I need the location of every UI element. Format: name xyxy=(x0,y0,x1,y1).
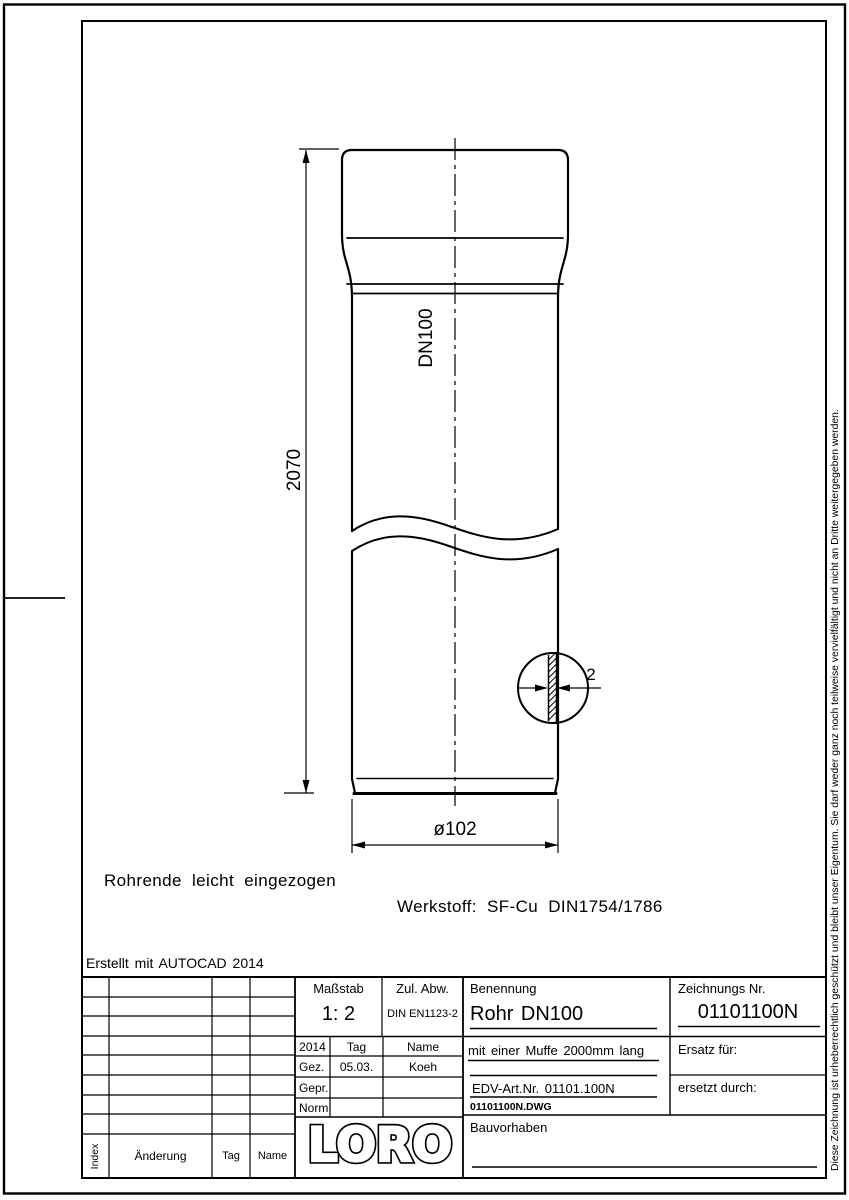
norm-label: Norm. xyxy=(299,1102,332,1114)
material-note: Werkstoff: SF-Cu DIN1754/1786 xyxy=(397,898,663,915)
description-line: mit einer Muffe 2000mm lang xyxy=(468,1044,644,1057)
loro-logo-inner: LORO xyxy=(308,1118,452,1173)
scale-value: 1: 2 xyxy=(295,1004,382,1024)
tolerance-value: DIN EN1123-2 xyxy=(382,1009,463,1020)
length-dimension-label: 2070 xyxy=(285,425,301,515)
dimension-arrowheads xyxy=(303,150,571,849)
replaced-by-label: ersetzt durch: xyxy=(678,1081,757,1094)
name-header-cell: Name xyxy=(383,1041,463,1053)
revision-name-header: Name xyxy=(250,1151,295,1162)
drawing-number-value: 01101100N xyxy=(670,1002,826,1022)
pipe-size-label: DN100 xyxy=(417,293,433,383)
wall-thickness-label: 2 xyxy=(581,666,601,683)
dwg-filename: 01101100N.DWG xyxy=(470,1102,552,1113)
gez-date: 05.03. xyxy=(330,1061,383,1073)
tolerance-label: Zul. Abw. xyxy=(382,982,463,995)
drawing-number-label: Zeichnungs Nr. xyxy=(678,982,765,995)
year-cell: 2014 xyxy=(295,1041,330,1053)
gez-name: Koeh xyxy=(383,1061,463,1073)
revision-index-header: Index xyxy=(90,1136,101,1177)
copyright-notice: Diese Zeichnung ist urheberrechtlich ges… xyxy=(830,409,842,1171)
tag-header-cell: Tag xyxy=(330,1041,383,1053)
replacement-for-label: Ersatz für: xyxy=(678,1043,737,1056)
gepr-label: Gepr. xyxy=(299,1082,328,1094)
edv-article-number: EDV-Art.Nr. 01101.100N xyxy=(472,1082,615,1095)
project-label: Bauvorhaben xyxy=(470,1121,547,1134)
created-with-note: Erstellt mit AUTOCAD 2014 xyxy=(86,956,264,970)
scale-label: Maßstab xyxy=(295,982,382,995)
gez-label: Gez. xyxy=(299,1061,324,1073)
diameter-dimension-label: ø102 xyxy=(405,820,505,839)
designation-value: Rohr DN100 xyxy=(470,1004,583,1024)
drawing-sheet: LORO LORO 2070 DN100 2 ø102 Rohrende lei… xyxy=(0,0,849,1200)
dimension-lines xyxy=(284,149,601,853)
revision-tag-header: Tag xyxy=(212,1151,250,1162)
designation-label: Benennung xyxy=(470,982,537,995)
pipe-end-note: Rohrende leicht eingezogen xyxy=(104,872,336,889)
revision-change-header: Änderung xyxy=(109,1150,212,1162)
loro-logo: LORO LORO xyxy=(308,1118,452,1173)
